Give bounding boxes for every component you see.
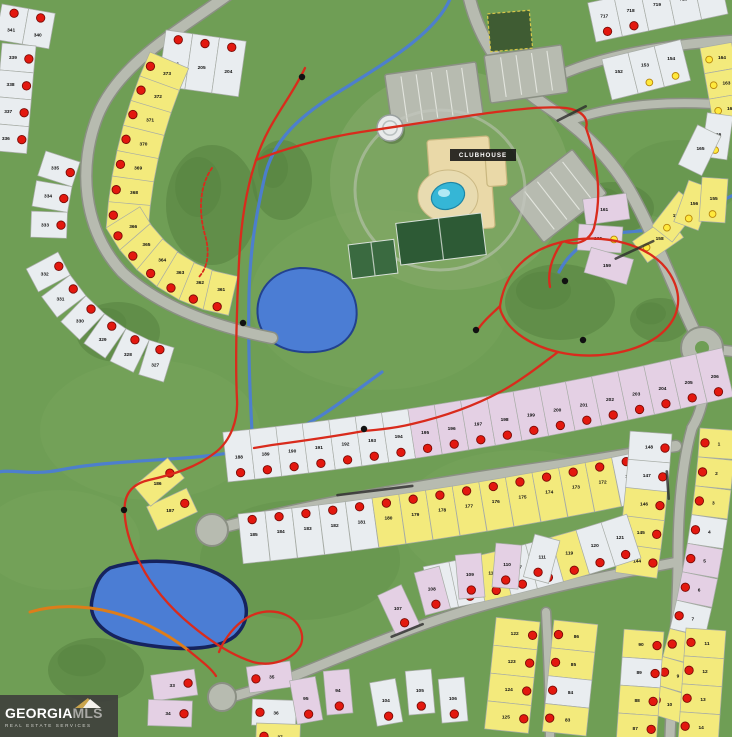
sold-marker[interactable] [520,715,528,723]
sold-marker[interactable] [69,285,77,293]
sold-marker[interactable] [189,295,197,303]
sold-marker[interactable] [450,440,458,448]
tree-patch [516,272,571,310]
sold-marker[interactable] [263,466,271,474]
sold-marker[interactable] [122,135,130,143]
sold-marker[interactable] [523,687,531,695]
sold-marker[interactable] [501,576,509,584]
sold-marker[interactable] [649,697,657,705]
sold-marker[interactable] [343,456,351,464]
mountain-peak-icon [73,697,103,708]
subdivision-map: 2062052043413403393383373363353343333323… [0,0,732,737]
sold-marker[interactable] [57,221,65,229]
sold-marker[interactable] [55,262,63,270]
sold-marker[interactable] [681,583,689,591]
sold-marker[interactable] [236,468,244,476]
sold-marker[interactable] [698,468,706,476]
sold-marker[interactable] [570,566,578,574]
sold-marker[interactable] [423,444,431,452]
sold-marker[interactable] [87,305,95,313]
sold-marker[interactable] [382,499,390,507]
sold-marker[interactable] [260,732,268,737]
sold-marker[interactable] [583,416,591,424]
trail-marker[interactable] [121,507,127,513]
sold-marker[interactable] [256,708,264,716]
sold-marker[interactable] [228,43,236,51]
sold-marker[interactable] [36,14,44,22]
sold-marker[interactable] [701,439,709,447]
sold-marker[interactable] [304,710,312,718]
sold-marker[interactable] [252,675,260,683]
sold-marker[interactable] [20,109,28,117]
georgia-mls-logo: GEORGIAMLS [5,705,114,722]
sold-marker[interactable] [534,568,542,576]
sold-marker[interactable] [290,462,298,470]
trail-marker[interactable] [580,337,586,343]
sold-marker[interactable] [569,468,577,476]
sold-marker[interactable] [542,473,550,481]
sold-marker[interactable] [213,302,221,310]
tree-patch [636,302,666,324]
sold-marker[interactable] [656,501,664,509]
tree-patch [175,157,221,217]
sold-marker[interactable] [603,27,611,35]
sold-marker[interactable] [66,168,74,176]
sold-marker[interactable] [167,284,175,292]
sold-marker[interactable] [489,482,497,490]
sold-marker[interactable] [675,612,683,620]
sold-marker[interactable] [180,710,188,718]
sold-marker[interactable] [108,322,116,330]
available-marker[interactable] [710,82,717,89]
sold-marker[interactable] [112,185,120,193]
sold-marker[interactable] [688,394,696,402]
sold-marker[interactable] [60,194,68,202]
sold-marker[interactable] [548,686,556,694]
sold-marker[interactable] [317,459,325,467]
available-marker[interactable] [664,224,671,231]
sold-marker[interactable] [201,39,209,47]
trail-marker[interactable] [299,74,305,80]
sold-marker[interactable] [530,426,538,434]
lot-parcel[interactable] [705,68,732,99]
sold-marker[interactable] [275,512,283,520]
trail-marker[interactable] [473,327,479,333]
tree-patch [58,644,106,676]
sold-marker[interactable] [609,411,617,419]
sold-marker[interactable] [652,530,660,538]
sold-marker[interactable] [146,62,154,70]
sold-marker[interactable] [596,463,604,471]
sold-marker[interactable] [503,431,511,439]
pool-highlight [438,189,450,197]
sold-marker[interactable] [400,619,408,627]
sold-marker[interactable] [129,110,137,118]
sold-marker[interactable] [109,211,117,219]
sold-marker[interactable] [248,515,256,523]
brand-georgia: GEORGIA [5,705,73,721]
sold-marker[interactable] [554,630,562,638]
available-marker[interactable] [715,107,722,114]
cul-de-sac[interactable] [196,514,228,546]
sold-marker[interactable] [18,135,26,143]
sold-marker[interactable] [131,336,139,344]
sold-marker[interactable] [551,658,559,666]
sold-marker[interactable] [685,666,693,674]
sold-marker[interactable] [647,725,655,733]
sold-marker[interactable] [432,600,440,608]
sold-marker[interactable] [596,558,604,566]
sold-marker[interactable] [467,586,475,594]
sold-marker[interactable] [649,559,657,567]
trail-marker[interactable] [240,320,246,326]
sold-marker[interactable] [681,722,689,730]
sold-marker[interactable] [518,580,526,588]
available-marker[interactable] [672,73,679,80]
sold-marker[interactable] [450,710,458,718]
sold-marker[interactable] [556,421,564,429]
sold-marker[interactable] [436,491,444,499]
trail-marker[interactable] [562,278,568,284]
sold-marker[interactable] [116,160,124,168]
sold-marker[interactable] [10,9,18,17]
map-canvas[interactable]: 2062052043413403393383373363353343333323… [0,0,732,737]
sold-marker[interactable] [355,503,363,511]
georgia-mls-watermark: GEORGIAMLS REAL ESTATE SERVICES [0,695,118,737]
brand-tagline: REAL ESTATE SERVICES [5,723,114,728]
sold-marker[interactable] [114,232,122,240]
sold-marker[interactable] [662,400,670,408]
sold-marker[interactable] [129,252,137,260]
sold-marker[interactable] [546,714,554,722]
sold-marker[interactable] [653,641,661,649]
sold-marker[interactable] [661,444,669,452]
sold-marker[interactable] [22,82,30,90]
parking-lot[interactable] [484,45,568,103]
sold-marker[interactable] [528,631,536,639]
available-marker[interactable] [706,56,713,63]
cul-de-sac[interactable] [208,683,236,711]
sold-marker[interactable] [137,86,145,94]
sold-marker[interactable] [714,388,722,396]
trail-marker[interactable] [361,426,367,432]
sold-marker[interactable] [477,436,485,444]
sold-marker[interactable] [397,448,405,456]
sold-marker[interactable] [181,499,189,507]
sold-marker[interactable] [462,487,470,495]
sold-marker[interactable] [687,554,695,562]
sold-marker[interactable] [691,526,699,534]
sold-marker[interactable] [630,22,638,30]
sold-marker[interactable] [174,36,182,44]
available-marker[interactable] [685,215,692,222]
sold-marker[interactable] [25,55,33,63]
sold-marker[interactable] [384,712,392,720]
sold-marker[interactable] [687,638,695,646]
sold-marker[interactable] [621,550,629,558]
sold-marker[interactable] [370,452,378,460]
sold-marker[interactable] [668,640,676,648]
sold-marker[interactable] [146,269,154,277]
garden-plot [487,10,532,52]
sold-marker[interactable] [651,669,659,677]
sold-marker[interactable] [417,702,425,710]
sold-marker[interactable] [635,405,643,413]
sold-marker[interactable] [516,478,524,486]
sold-marker[interactable] [695,497,703,505]
lot-parcel[interactable] [700,42,732,73]
sold-marker[interactable] [335,702,343,710]
sold-marker[interactable] [329,506,337,514]
sold-marker[interactable] [184,679,192,687]
available-marker[interactable] [646,79,653,86]
sold-marker[interactable] [525,659,533,667]
clubhouse-label: CLUBHOUSE [459,152,507,159]
sold-marker[interactable] [156,345,164,353]
sold-marker[interactable] [302,509,310,517]
available-marker[interactable] [709,211,716,218]
sold-marker[interactable] [409,495,417,503]
sold-marker[interactable] [683,694,691,702]
